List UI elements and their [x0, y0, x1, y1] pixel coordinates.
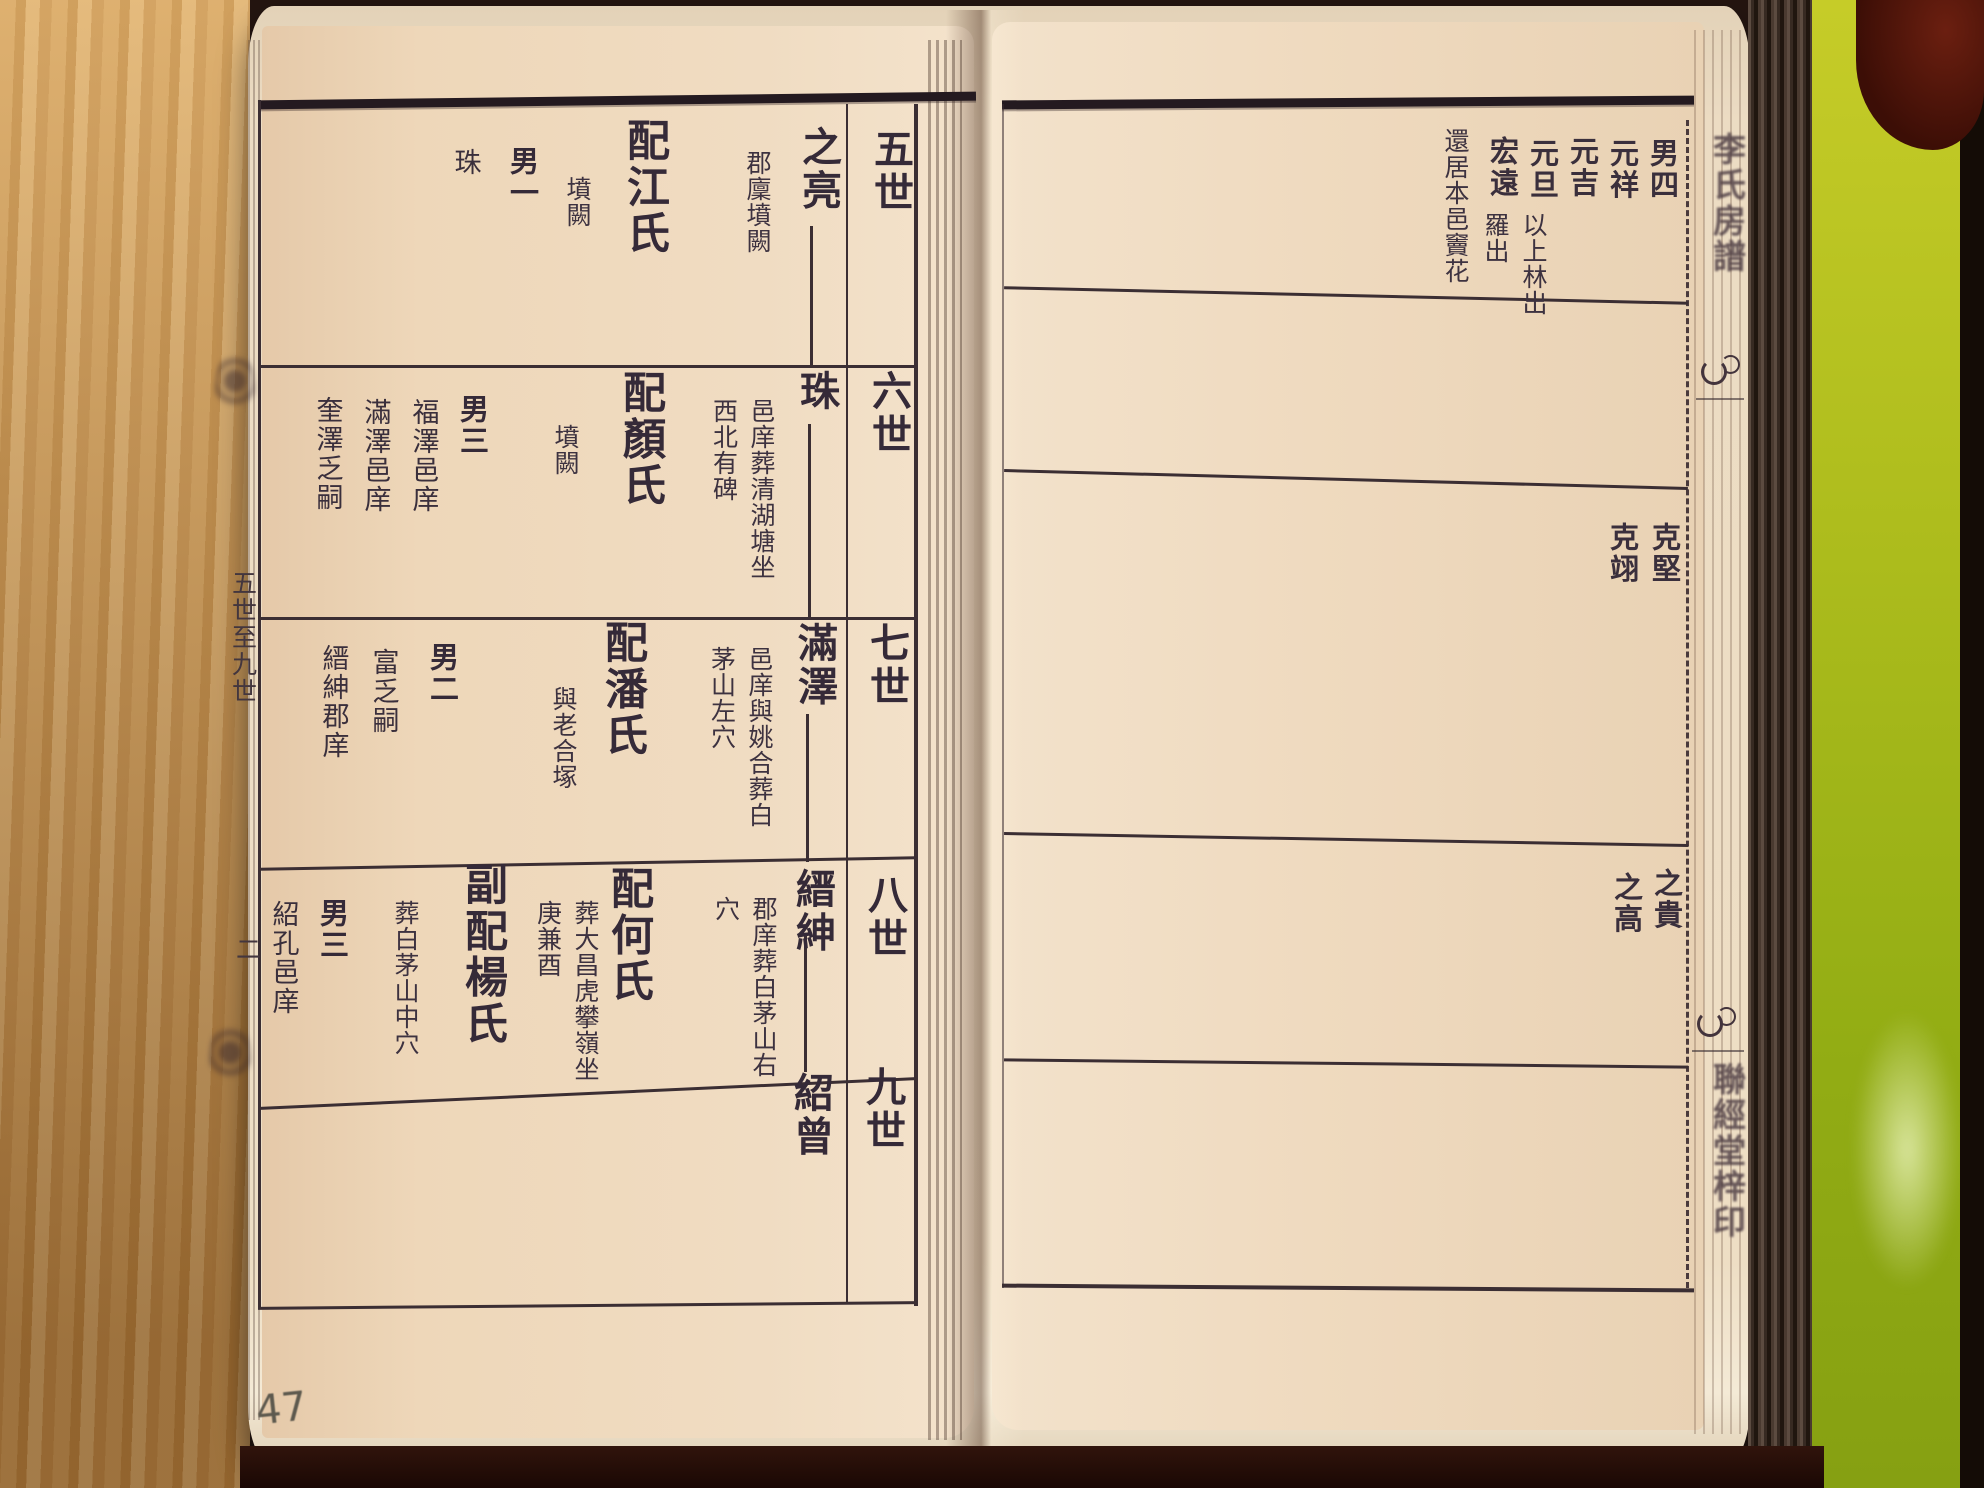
spouse-note-gen7: 與老合塚	[548, 686, 582, 888]
sons-label-gen5: 男一	[500, 146, 544, 246]
book-edge-pages	[1748, 0, 1812, 1488]
right-table-left-border	[1002, 104, 1004, 1288]
rp-son-3-note: 以上林出	[1520, 212, 1552, 352]
wooden-desk	[0, 0, 250, 1488]
son-gen6-3: 奎澤乏嗣	[306, 396, 347, 546]
son-gen6-1: 福澤邑庠	[402, 398, 443, 548]
spine-ornament-top	[1698, 354, 1742, 392]
photo-of-genealogy-book: 五世 六世 七世 八世 九世 之亮 郡廩墳闕 配江氏 墳闕 男一 珠 珠 邑庠葬…	[0, 0, 1984, 1488]
rp-sons-label: 男四	[1640, 138, 1684, 234]
rp-band4-name-2: 之高	[1604, 872, 1648, 968]
second-spouse-gen8: 副配楊氏	[450, 862, 515, 1092]
ink-bleed-stamp-top	[214, 346, 256, 486]
left-divider-2	[260, 617, 916, 620]
image-right-edge	[1960, 0, 1984, 1488]
rp-band3-name-2: 克翊	[1600, 522, 1644, 618]
right-table-right-border	[1686, 120, 1689, 1288]
generation-header-8: 八世	[854, 874, 914, 1004]
generation-header-5: 五世	[860, 128, 920, 258]
rp-band4-name-1: 之貴	[1644, 868, 1688, 964]
ancestor-note-gen7: 邑庠與姚合葬白茅山左穴	[696, 646, 778, 848]
son-gen5-1: 珠	[444, 148, 485, 298]
spouse-gen7: 配潘氏	[590, 620, 655, 830]
spouse-note-gen5: 墳闕	[562, 176, 596, 378]
desk-shadow-bottom	[240, 1446, 1824, 1488]
ancestor-name-gen9: 紹曾	[780, 1072, 840, 1222]
son-gen8-1: 紹孔邑庠	[262, 900, 303, 1050]
son-gen7-1: 富乏嗣	[362, 648, 403, 798]
ancestor-name-gen5: 之亮	[788, 126, 848, 276]
spine-ornament-bottom	[1694, 1006, 1738, 1044]
spouse-note-gen8: 葬大昌虎攀嶺坐庚兼酉	[524, 900, 604, 1102]
son-gen6-2: 滿澤邑庠	[354, 398, 395, 548]
generation-header-6: 六世	[858, 370, 918, 500]
second-spouse-note-gen8: 葬白茅山中穴	[390, 900, 424, 1102]
sons-label-gen7: 男二	[420, 642, 464, 742]
spouse-note-gen6: 墳闕	[550, 424, 584, 626]
ink-bleed-stamp-bottom	[208, 1010, 252, 1180]
rp-son-2: 元吉	[1560, 136, 1604, 232]
cover-glare	[1852, 1010, 1962, 1290]
ancestor-note-gen6: 邑庠葬清湖塘坐西北有碑	[698, 398, 780, 600]
rp-son-4-note: 羅出	[1482, 212, 1514, 302]
ancestor-name-gen8: 縉紳	[782, 868, 842, 1018]
book-gutter-shadow	[946, 10, 1024, 1460]
sons-label-gen8: 男三	[310, 898, 354, 998]
ancestor-note-gen5: 郡廩墳闕	[740, 150, 776, 352]
right-page-paper	[992, 22, 1704, 1430]
generation-header-7: 七世	[856, 622, 916, 752]
spine-ornament-rule-bottom	[1692, 1050, 1744, 1052]
ancestor-note-gen8: 郡庠葬白茅山右穴	[700, 896, 782, 1098]
margin-folio-marker: 二	[228, 936, 266, 986]
spine-title: 李氏房譜	[1702, 132, 1752, 382]
spine-publisher: 聯經堂梓印	[1702, 1062, 1752, 1312]
spouse-gen6: 配顏氏	[608, 370, 673, 580]
rp-son-1: 元祥	[1600, 138, 1644, 234]
sons-label-gen6: 男三	[450, 394, 494, 494]
spine-ornament-rule-top	[1696, 398, 1744, 400]
left-generation-column-line	[846, 104, 848, 1304]
ancestor-name-gen6: 珠	[786, 370, 846, 520]
rp-band3-name-1: 克堅	[1642, 522, 1686, 618]
spouse-gen5: 配江氏	[612, 118, 677, 328]
margin-chapter-range: 五世至九世	[224, 570, 262, 790]
rp-residence-note: 還居本邑竇花	[1442, 128, 1474, 318]
generation-header-9: 九世	[852, 1066, 912, 1196]
son-gen7-2: 縉紳郡庠	[312, 644, 353, 794]
handwritten-page-number: 47	[254, 1383, 309, 1434]
spouse-gen8: 配何氏	[596, 866, 661, 1076]
ancestor-name-gen7: 滿澤	[784, 622, 844, 772]
